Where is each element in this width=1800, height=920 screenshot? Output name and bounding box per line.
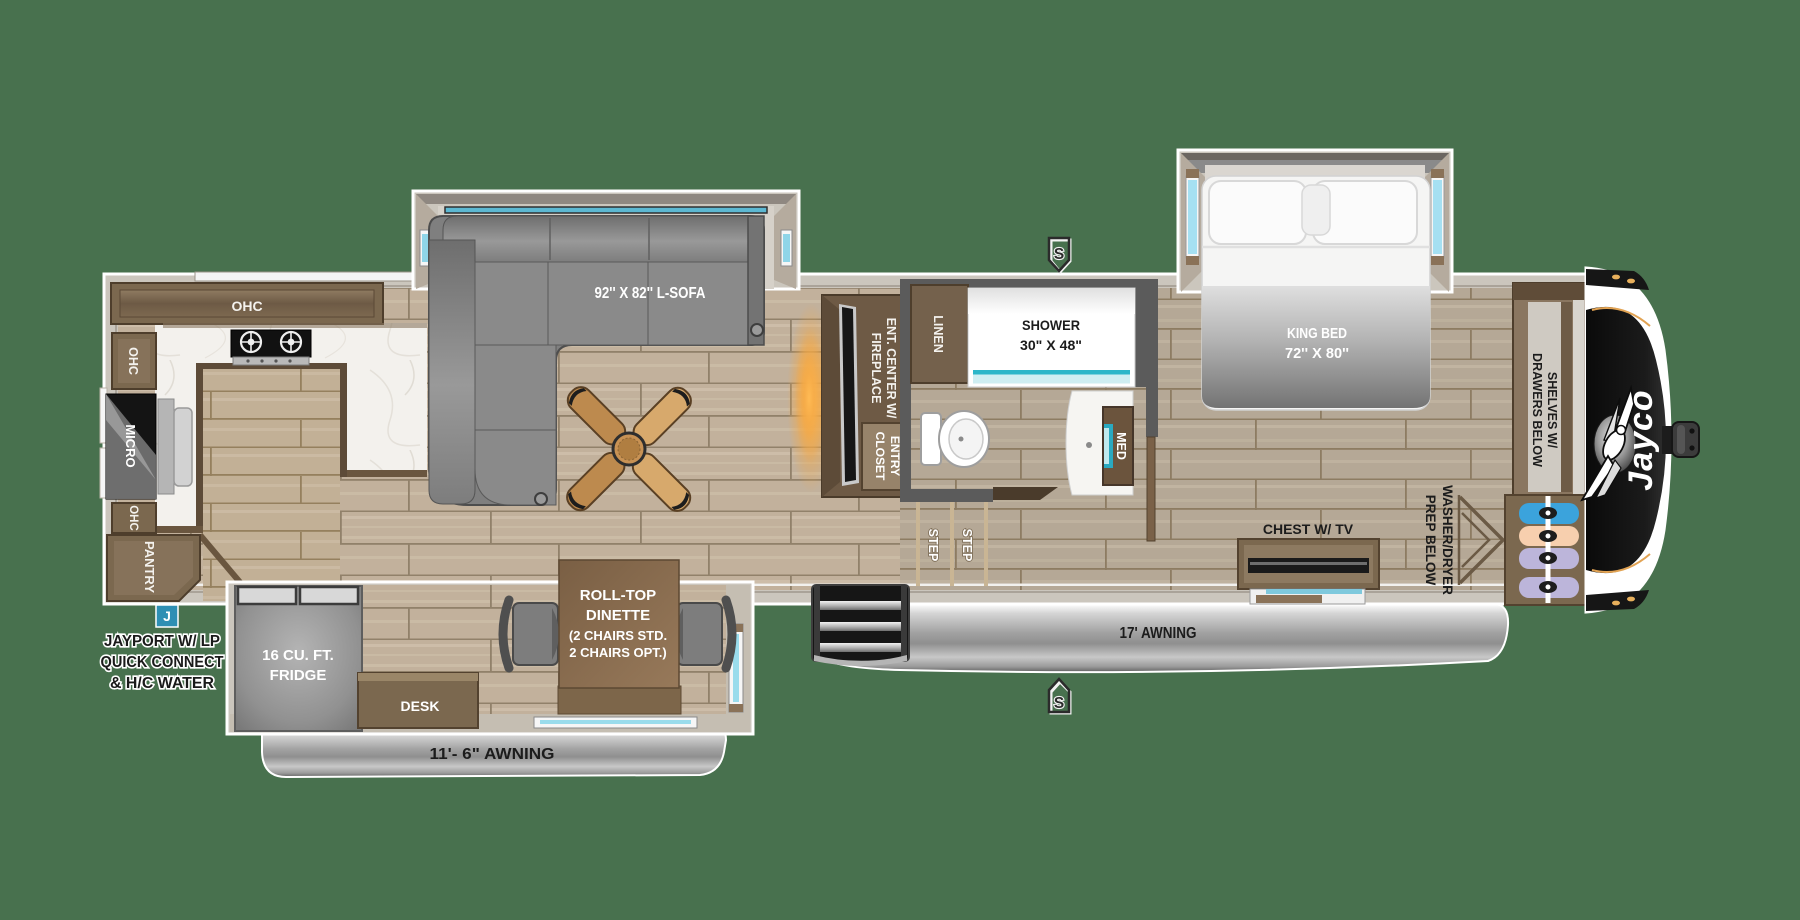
svg-text:OHC: OHC (231, 298, 262, 314)
svg-text:PANTRY: PANTRY (142, 541, 157, 593)
svg-text:S: S (1054, 246, 1064, 263)
svg-text:17' AWNING: 17' AWNING (1120, 625, 1197, 642)
svg-text:MICRO: MICRO (123, 424, 138, 467)
svg-text:ROLL-TOP: ROLL-TOP (580, 587, 656, 604)
svg-text:DINETTE: DINETTE (586, 607, 650, 624)
svg-text:DESK: DESK (401, 698, 440, 714)
svg-text:(2 CHAIRS STD.: (2 CHAIRS STD. (569, 628, 667, 643)
svg-text:DRAWERS BELOW: DRAWERS BELOW (1530, 353, 1544, 467)
svg-text:J: J (163, 608, 171, 624)
svg-text:72'' X 80'': 72'' X 80'' (1285, 345, 1349, 362)
svg-text:PREP BELOW: PREP BELOW (1423, 495, 1438, 586)
svg-text:30" X 48": 30" X 48" (1020, 337, 1082, 353)
svg-text:CLOSET: CLOSET (873, 432, 887, 481)
svg-text:LINEN: LINEN (931, 315, 945, 353)
svg-text:KING BED: KING BED (1287, 325, 1347, 342)
svg-text:S: S (1054, 695, 1064, 712)
svg-text:ENTRY: ENTRY (888, 436, 902, 476)
svg-text:QUICK CONNECT: QUICK CONNECT (101, 654, 224, 671)
svg-text:OHC: OHC (127, 505, 139, 531)
svg-text:16 CU. FT.: 16 CU. FT. (262, 647, 334, 664)
svg-text:SHELVES W/: SHELVES W/ (1545, 372, 1559, 449)
svg-text:WASHER/DRYER: WASHER/DRYER (1440, 485, 1455, 595)
svg-text:OHC: OHC (126, 347, 140, 375)
svg-text:2 CHAIRS OPT.): 2 CHAIRS OPT.) (569, 645, 667, 660)
svg-text:FIREPLACE: FIREPLACE (869, 333, 883, 404)
svg-text:MED: MED (1114, 432, 1128, 460)
svg-text:FRIDGE: FRIDGE (270, 667, 327, 684)
svg-text:ENT. CENTER W/: ENT. CENTER W/ (884, 318, 898, 419)
svg-text:JAYPORT W/ LP: JAYPORT W/ LP (104, 633, 220, 650)
svg-text:STEP: STEP (960, 529, 974, 562)
svg-text:11'- 6" AWNING: 11'- 6" AWNING (430, 746, 555, 763)
svg-text:Jayco: Jayco (1622, 389, 1660, 490)
svg-text:92'' X 82'' L-SOFA: 92'' X 82'' L-SOFA (595, 285, 706, 302)
svg-text:CHEST W/ TV: CHEST W/ TV (1263, 521, 1354, 537)
svg-text:STEP: STEP (926, 529, 940, 562)
svg-text:& H/C WATER: & H/C WATER (110, 675, 214, 692)
svg-text:SHOWER: SHOWER (1022, 317, 1080, 333)
